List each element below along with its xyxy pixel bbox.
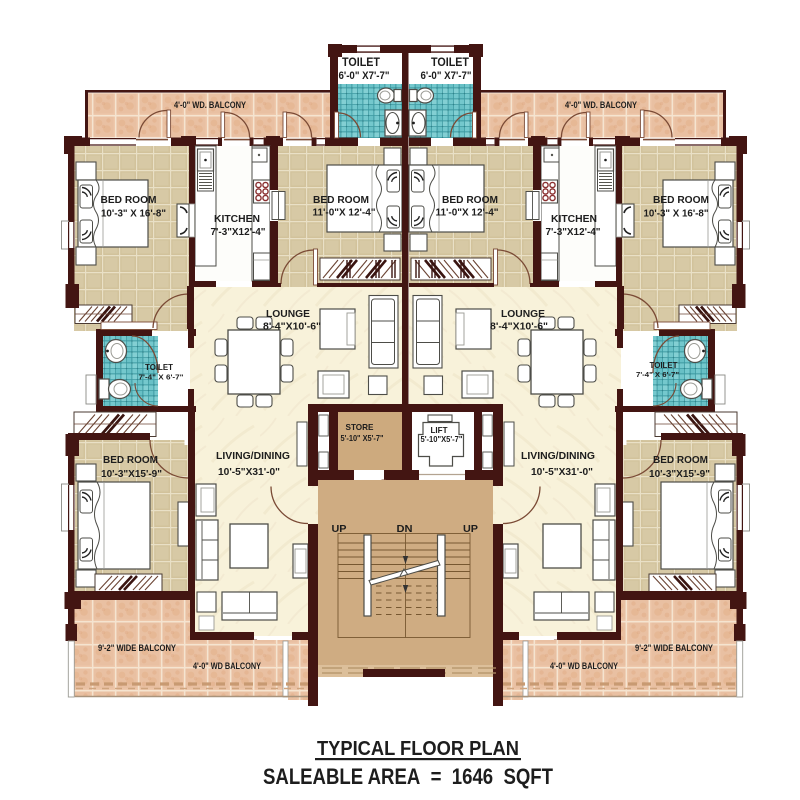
svg-text:BED ROOM: BED ROOM (442, 194, 498, 206)
svg-text:11'-0"X 12'-4": 11'-0"X 12'-4" (436, 207, 499, 219)
svg-text:4'-0" WD. BALCONY: 4'-0" WD. BALCONY (565, 100, 637, 110)
svg-text:LIVING/DINING: LIVING/DINING (216, 450, 290, 462)
svg-text:4'-0" WD BALCONY: 4'-0" WD BALCONY (193, 661, 262, 672)
svg-text:TOILET: TOILET (650, 361, 678, 370)
svg-text:6'-0" X7'-7": 6'-0" X7'-7" (339, 70, 390, 82)
svg-text:9'-2" WIDE BALCONY: 9'-2" WIDE BALCONY (635, 643, 714, 654)
svg-text:10'-3" X 16'-8": 10'-3" X 16'-8" (101, 208, 166, 220)
svg-text:LOUNGE: LOUNGE (266, 308, 310, 320)
svg-text:UP: UP (332, 523, 347, 535)
svg-text:10'-5"X31'-0": 10'-5"X31'-0" (218, 466, 280, 478)
svg-text:LIVING/DINING: LIVING/DINING (521, 450, 595, 462)
svg-text:KITCHEN: KITCHEN (214, 213, 260, 225)
svg-text:BED ROOM: BED ROOM (103, 454, 158, 466)
svg-text:STORE: STORE (346, 422, 374, 432)
svg-text:DN: DN (397, 523, 413, 535)
svg-text:10'-3" X 16'-8": 10'-3" X 16'-8" (644, 208, 709, 220)
svg-text:7'-4" X 6'-7": 7'-4" X 6'-7" (636, 370, 679, 379)
svg-text:6'-0" X7'-7": 6'-0" X7'-7" (421, 70, 472, 82)
svg-text:UP: UP (463, 523, 478, 535)
svg-text:4'-0" WD BALCONY: 4'-0" WD BALCONY (550, 661, 619, 672)
svg-text:8'-4"X10'-6": 8'-4"X10'-6" (263, 321, 321, 333)
svg-text:BED ROOM: BED ROOM (653, 194, 709, 206)
svg-text:KITCHEN: KITCHEN (551, 213, 597, 225)
svg-text:TOILET: TOILET (431, 55, 470, 69)
svg-text:BED ROOM: BED ROOM (101, 194, 157, 206)
svg-text:SALEABLE AREA = 1646 SQFT: SALEABLE AREA = 1646 SQFT (263, 764, 553, 789)
svg-text:BED ROOM: BED ROOM (313, 194, 369, 206)
svg-text:4'-0" WD. BALCONY: 4'-0" WD. BALCONY (174, 100, 246, 110)
svg-text:8'-4"X10'-6": 8'-4"X10'-6" (490, 321, 548, 333)
svg-text:TYPICAL FLOOR PLAN: TYPICAL FLOOR PLAN (317, 737, 519, 760)
svg-text:10'-3"X15'-9": 10'-3"X15'-9" (101, 468, 162, 480)
svg-text:10'-3"X15'-9": 10'-3"X15'-9" (649, 468, 710, 480)
svg-text:TOILET: TOILET (145, 363, 173, 372)
svg-text:7'-3"X12'-4": 7'-3"X12'-4" (211, 227, 266, 238)
svg-text:7'-3"X12'-4": 7'-3"X12'-4" (546, 227, 601, 238)
svg-text:11'-0"X 12'-4": 11'-0"X 12'-4" (313, 207, 376, 219)
svg-text:7'-4" X 6'-7": 7'-4" X 6'-7" (139, 373, 184, 382)
svg-text:5'-10" X5'-7": 5'-10" X5'-7" (341, 434, 384, 443)
svg-text:9'-2" WIDE BALCONY: 9'-2" WIDE BALCONY (98, 643, 177, 654)
svg-text:LIFT: LIFT (431, 425, 449, 435)
svg-text:TOILET: TOILET (342, 55, 381, 69)
svg-text:BED ROOM: BED ROOM (653, 454, 708, 466)
svg-text:5'-10"X5'-7": 5'-10"X5'-7" (421, 435, 463, 444)
svg-text:10'-5"X31'-0": 10'-5"X31'-0" (531, 466, 593, 478)
svg-text:LOUNGE: LOUNGE (501, 308, 545, 320)
